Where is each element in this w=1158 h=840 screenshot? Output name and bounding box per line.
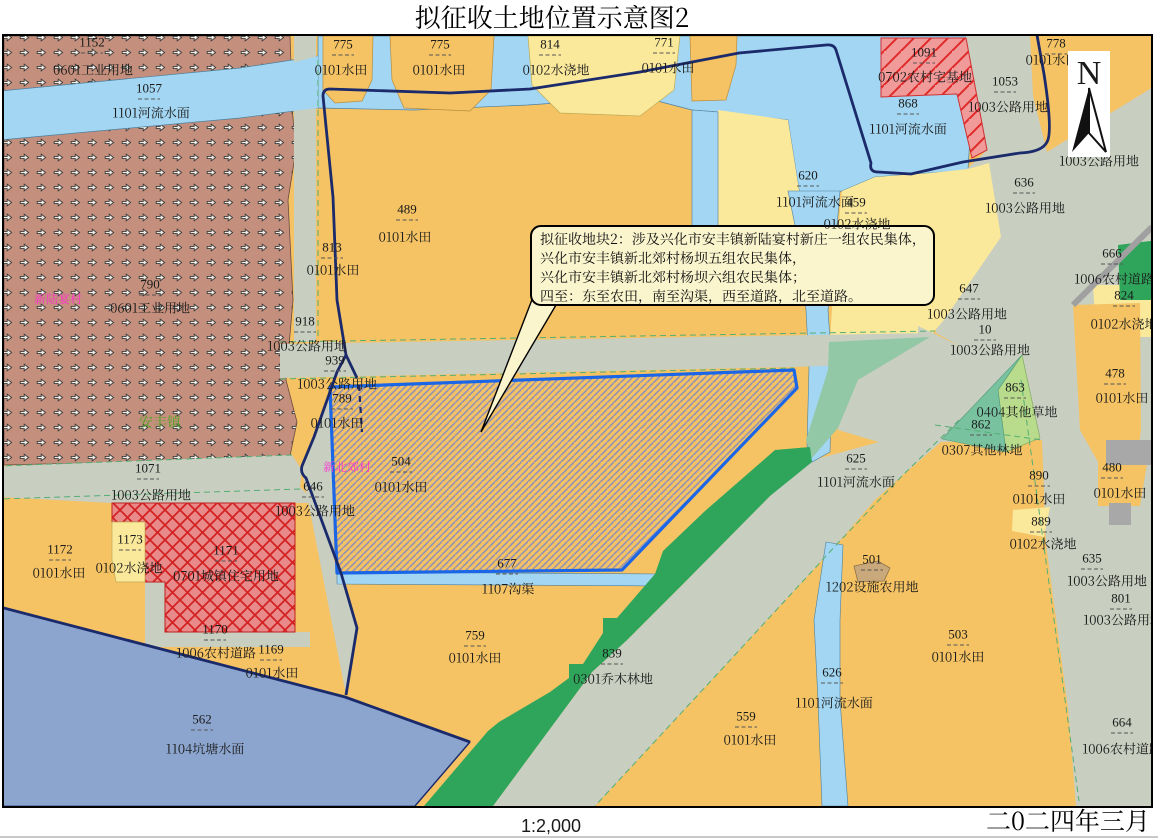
svg-text:1169: 1169 <box>258 642 284 657</box>
svg-text:N: N <box>1077 55 1102 92</box>
svg-text:778: 778 <box>1046 36 1066 51</box>
svg-text:664: 664 <box>1112 715 1132 730</box>
svg-text:501: 501 <box>862 552 882 567</box>
svg-text:646: 646 <box>303 479 323 494</box>
svg-text:759: 759 <box>465 628 485 643</box>
svg-text:890: 890 <box>1029 468 1049 483</box>
svg-text:10: 10 <box>979 322 992 337</box>
svg-text:1171: 1171 <box>213 543 239 558</box>
svg-text:478: 478 <box>1105 366 1125 381</box>
svg-text:813: 813 <box>322 240 342 255</box>
svg-text:459: 459 <box>846 195 866 210</box>
svg-text:771: 771 <box>654 35 674 50</box>
svg-text:775: 775 <box>430 37 450 52</box>
svg-text:504: 504 <box>391 454 411 469</box>
svg-text:839: 839 <box>602 646 622 661</box>
svg-text:824: 824 <box>1114 288 1134 303</box>
svg-text:625: 625 <box>846 451 866 466</box>
svg-text:790: 790 <box>140 277 160 292</box>
svg-text:559: 559 <box>736 709 756 724</box>
svg-text:489: 489 <box>397 202 417 217</box>
svg-text:503: 503 <box>948 627 968 642</box>
svg-text:620: 620 <box>798 168 818 183</box>
svg-text:635: 635 <box>1082 551 1102 566</box>
svg-text:562: 562 <box>192 712 212 727</box>
svg-text:677: 677 <box>497 556 517 571</box>
svg-text:1170: 1170 <box>202 622 228 637</box>
svg-text:1071: 1071 <box>135 461 161 476</box>
svg-text:939: 939 <box>325 353 345 368</box>
svg-text:814: 814 <box>540 37 560 52</box>
svg-text:647: 647 <box>959 281 979 296</box>
svg-text:918: 918 <box>295 314 315 329</box>
svg-text:863: 863 <box>1005 380 1025 395</box>
svg-text:1:2,000: 1:2,000 <box>521 816 581 836</box>
svg-text:1053: 1053 <box>992 74 1018 89</box>
svg-text:626: 626 <box>822 665 842 680</box>
svg-text:480: 480 <box>1102 460 1122 475</box>
svg-text:1091: 1091 <box>911 45 937 60</box>
svg-text:862: 862 <box>971 417 991 432</box>
svg-text:636: 636 <box>1014 175 1034 190</box>
svg-text:666: 666 <box>1102 246 1122 261</box>
svg-text:868: 868 <box>898 96 918 111</box>
svg-text:789: 789 <box>332 391 352 406</box>
svg-text:1173: 1173 <box>117 532 143 547</box>
svg-text:1057: 1057 <box>136 81 163 96</box>
svg-text:801: 801 <box>1111 591 1131 606</box>
svg-text:889: 889 <box>1031 514 1051 529</box>
svg-text:775: 775 <box>333 37 353 52</box>
svg-text:1152: 1152 <box>79 35 105 50</box>
svg-text:1172: 1172 <box>47 542 73 557</box>
